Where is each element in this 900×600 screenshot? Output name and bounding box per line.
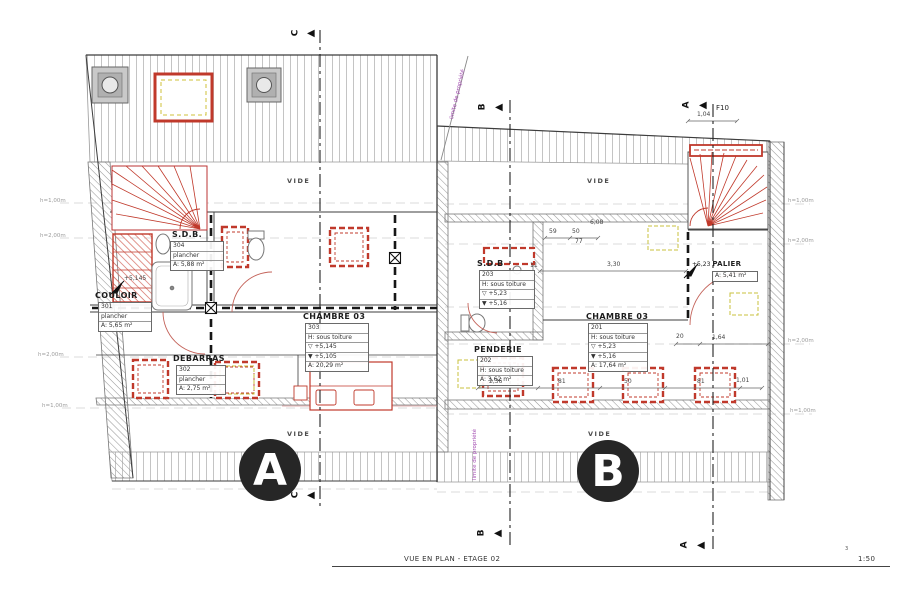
room-floor: plancher <box>171 251 223 261</box>
room-name-sdb-304: S.D.B. <box>172 231 202 240</box>
chimney-2 <box>247 68 281 102</box>
room-name-sdb-203: S.D.B <box>477 260 504 269</box>
staircase-right <box>688 145 768 229</box>
room-card-palier: A: 5,41 m² <box>712 271 758 282</box>
sheet-number: 3 <box>845 547 848 553</box>
skylight-window <box>155 74 212 121</box>
room-number: 203 <box>480 271 534 280</box>
room-card-penderie: 202 H: sous toiture A: 3,62 m² <box>477 356 533 386</box>
zone-bubble-a: A <box>239 439 301 501</box>
room-level-top: ▽ +5,145 <box>306 342 368 352</box>
height-label-right-3: h=2,00m <box>788 338 814 344</box>
dim-59: 59 <box>549 229 557 236</box>
dim-1-64: 1,64 <box>712 335 725 342</box>
drawing-scale: 1:50 <box>858 556 875 564</box>
section-marker-a-bottom: A <box>681 541 691 548</box>
room-card-couloir: 301 plancher A: 5,65 m² <box>98 302 152 332</box>
height-label-left-2: h=2,00m <box>40 233 66 239</box>
height-label-right-2: h=2,00m <box>788 238 814 244</box>
dim-2-36: 2,36 <box>489 379 502 386</box>
level-label-left: +5,145 <box>124 276 146 283</box>
section-arrow-b-top-icon: ◀ <box>495 102 503 113</box>
room-area: A: 5,41 m² <box>713 272 757 281</box>
dim-1-04: 1,04 <box>697 112 710 119</box>
room-floor: plancher <box>177 375 225 385</box>
room-level-bottom: ▼ +5,16 <box>480 299 534 309</box>
height-label-left-4: h=1,00m <box>42 403 68 409</box>
room-name-chambre-303: CHAMBRE 03 <box>303 313 365 322</box>
room-number: 304 <box>171 242 223 251</box>
room-level-bottom: ▼ +5,16 <box>589 352 647 362</box>
height-label-left-3: h=2,00m <box>38 352 64 358</box>
room-level-bottom: ▼ +5,105 <box>306 352 368 362</box>
vide-label-right-top: VIDE <box>587 178 610 185</box>
floor-plan-page: C ◀ B ◀ A ◀ F10 1,04 C ◀ B ◀ A ◀ limite … <box>0 0 900 600</box>
vide-label-left-bottom: VIDE <box>287 431 310 438</box>
dim-81-a: 81 <box>558 379 566 386</box>
section-arrow-b-bottom-icon: ◀ <box>494 528 502 539</box>
room-name-debarras: DEBARRAS <box>173 355 225 364</box>
dim-81-b: 81 <box>697 379 705 386</box>
room-number: 303 <box>306 324 368 333</box>
vide-label-left-top: VIDE <box>287 178 310 185</box>
section-arrow-a-top-icon: ◀ <box>699 100 707 111</box>
room-name-chambre-201: CHAMBRE 03 <box>586 313 648 322</box>
room-area: A: 2,75 m² <box>177 384 225 394</box>
section-marker-c-bottom: C <box>291 492 301 499</box>
section-marker-b-top: B <box>478 104 488 111</box>
section-arrow-c-top-icon: ◀ <box>307 28 315 39</box>
stair-label-f10: F10 <box>716 105 729 113</box>
dim-50-b: 50 <box>624 379 632 386</box>
room-height: H: sous toiture <box>478 366 532 376</box>
chimney-1 <box>92 67 128 103</box>
room-number: 302 <box>177 366 225 375</box>
room-area: A: 5,88 m² <box>171 260 223 270</box>
room-level-top: ▽ +5,23 <box>480 289 534 299</box>
section-marker-b-bottom: B <box>477 530 487 537</box>
zone-bubble-b: B <box>577 440 639 502</box>
room-number: 301 <box>99 303 151 312</box>
section-arrow-a-bottom-icon: ◀ <box>697 540 705 551</box>
room-card-debarras: 302 plancher A: 2,75 m² <box>176 365 226 395</box>
room-name-penderie: PENDERIE <box>474 346 522 355</box>
room-area: A: 5,65 m² <box>99 321 151 331</box>
room-level-top: ▽ +5,23 <box>589 342 647 352</box>
dim-11: 11 <box>530 263 538 270</box>
drawing-title: VUE EN PLAN - ETAGE 02 <box>404 556 500 564</box>
room-card-chambre-201: 201 H: sous toiture ▽ +5,23 ▼ +5,16 A: 1… <box>588 323 648 372</box>
room-area: A: 20,29 m² <box>306 361 368 371</box>
height-label-right-4: h=1,00m <box>790 408 816 414</box>
height-label-left-1: h=1,00m <box>40 198 66 204</box>
dim-50: 50 <box>572 229 580 236</box>
dim-3-30: 3,30 <box>607 262 620 269</box>
room-number: 201 <box>589 324 647 333</box>
room-height: H: sous toiture <box>589 333 647 343</box>
dim-20: 20 <box>676 334 684 341</box>
room-number: 202 <box>478 357 532 366</box>
room-height: H: sous toiture <box>480 280 534 290</box>
property-limit-label-bottom: limite de propriété <box>472 422 478 480</box>
title-block-line <box>332 566 890 567</box>
room-card-sdb-203: 203 H: sous toiture ▽ +5,23 ▼ +5,16 <box>479 270 535 309</box>
room-card-chambre-303: 303 H: sous toiture ▽ +5,145 ▼ +5,105 A:… <box>305 323 369 372</box>
section-marker-c-top: C <box>291 30 301 37</box>
section-arrow-c-bottom-icon: ◀ <box>307 490 315 501</box>
palier-name: PALIER <box>712 260 741 268</box>
dim-77: 77 <box>575 239 583 246</box>
staircase-left <box>112 166 207 230</box>
palier-level: +5,23 <box>692 261 710 268</box>
room-name-couloir: COULOIR <box>95 292 138 301</box>
room-area: A: 3,62 m² <box>478 375 532 385</box>
dim-1-01: 1,01 <box>736 378 749 385</box>
room-name-palier: +5,23 PALIER <box>692 261 741 269</box>
vide-label-right-bottom: VIDE <box>588 431 611 438</box>
height-label-right-1: h=1,00m <box>788 198 814 204</box>
door-arcs <box>163 272 742 354</box>
room-area: A: 17,64 m² <box>589 361 647 371</box>
room-floor: plancher <box>99 312 151 322</box>
section-marker-a-top: A <box>683 101 693 108</box>
room-card-sdb-304: 304 plancher A: 5,88 m² <box>170 241 224 271</box>
dim-6-08: 6,08 <box>590 220 603 227</box>
room-height: H: sous toiture <box>306 333 368 343</box>
